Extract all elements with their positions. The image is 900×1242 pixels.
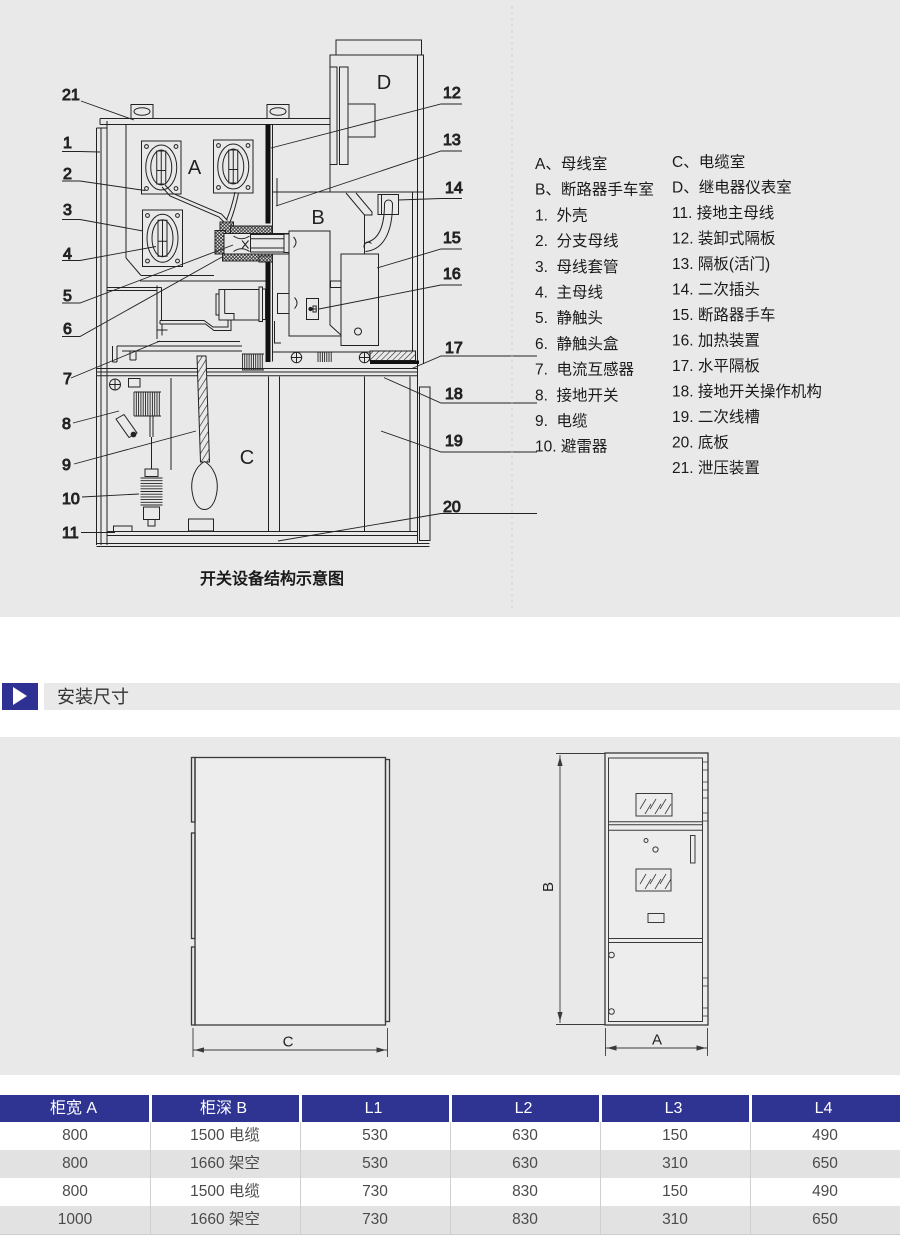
svg-text:17. 水平隔板: 17. 水平隔板	[672, 357, 760, 375]
svg-text:7. 电流互感器: 7. 电流互感器	[535, 361, 635, 379]
svg-text:C: C	[283, 1034, 294, 1051]
svg-text:20: 20	[443, 499, 461, 516]
svg-text:C: C	[240, 447, 254, 469]
svg-text:13. 隔板(活门): 13. 隔板(活门)	[672, 255, 770, 273]
svg-text:12: 12	[443, 85, 461, 102]
svg-text:2. 分支母线: 2. 分支母线	[535, 232, 619, 250]
svg-text:13: 13	[443, 132, 461, 149]
svg-text:4: 4	[63, 246, 72, 263]
svg-text:11: 11	[62, 525, 79, 542]
svg-text:20. 底板: 20. 底板	[672, 434, 729, 452]
svg-text:19. 二次线槽: 19. 二次线槽	[672, 408, 760, 426]
svg-text:3. 母线套管: 3. 母线套管	[535, 258, 619, 276]
svg-text:7: 7	[63, 371, 72, 388]
svg-text:A: A	[188, 157, 202, 179]
svg-text:14. 二次插头: 14. 二次插头	[672, 281, 760, 299]
svg-text:1: 1	[63, 135, 72, 152]
svg-text:19: 19	[445, 433, 463, 450]
svg-text:D、继电器仪表室: D、继电器仪表室	[672, 179, 792, 197]
svg-text:1. 外壳: 1. 外壳	[535, 206, 588, 224]
svg-text:C、电缆室: C、电缆室	[672, 153, 745, 171]
svg-text:9: 9	[62, 457, 71, 474]
svg-text:12. 装卸式隔板: 12. 装卸式隔板	[672, 230, 775, 248]
svg-text:17: 17	[445, 340, 463, 357]
svg-text:3: 3	[63, 202, 72, 219]
svg-text:5: 5	[63, 288, 72, 305]
svg-text:A、母线室: A、母线室	[535, 155, 607, 173]
svg-text:8: 8	[62, 416, 71, 433]
svg-text:B、断路器手车室: B、断路器手车室	[535, 181, 654, 199]
svg-text:18. 接地开关操作机构: 18. 接地开关操作机构	[672, 383, 822, 401]
svg-text:6. 静触头盒: 6. 静触头盒	[535, 335, 619, 353]
svg-text:10. 避雷器: 10. 避雷器	[535, 438, 608, 456]
svg-text:15. 断路器手车: 15. 断路器手车	[672, 306, 775, 324]
svg-text:B: B	[540, 882, 557, 892]
svg-text:5. 静触头: 5. 静触头	[535, 309, 603, 327]
svg-text:B: B	[311, 207, 324, 229]
svg-text:11. 接地主母线: 11. 接地主母线	[672, 204, 774, 222]
svg-text:9. 电缆: 9. 电缆	[535, 412, 588, 430]
svg-text:2: 2	[63, 166, 72, 183]
svg-text:8. 接地开关: 8. 接地开关	[535, 386, 619, 404]
svg-text:10: 10	[62, 491, 80, 508]
svg-text:21: 21	[62, 87, 80, 104]
svg-text:A: A	[652, 1032, 662, 1049]
svg-text:16: 16	[443, 266, 461, 283]
svg-text:6: 6	[63, 321, 72, 338]
svg-text:21. 泄压装置: 21. 泄压装置	[672, 459, 760, 477]
svg-text:16. 加热装置: 16. 加热装置	[672, 332, 760, 350]
svg-text:15: 15	[443, 230, 461, 247]
svg-text:D: D	[377, 72, 391, 94]
svg-text:14: 14	[445, 180, 463, 197]
svg-text:开关设备结构示意图: 开关设备结构示意图	[200, 569, 344, 588]
svg-text:4. 主母线: 4. 主母线	[535, 284, 603, 302]
svg-text:18: 18	[445, 386, 463, 403]
